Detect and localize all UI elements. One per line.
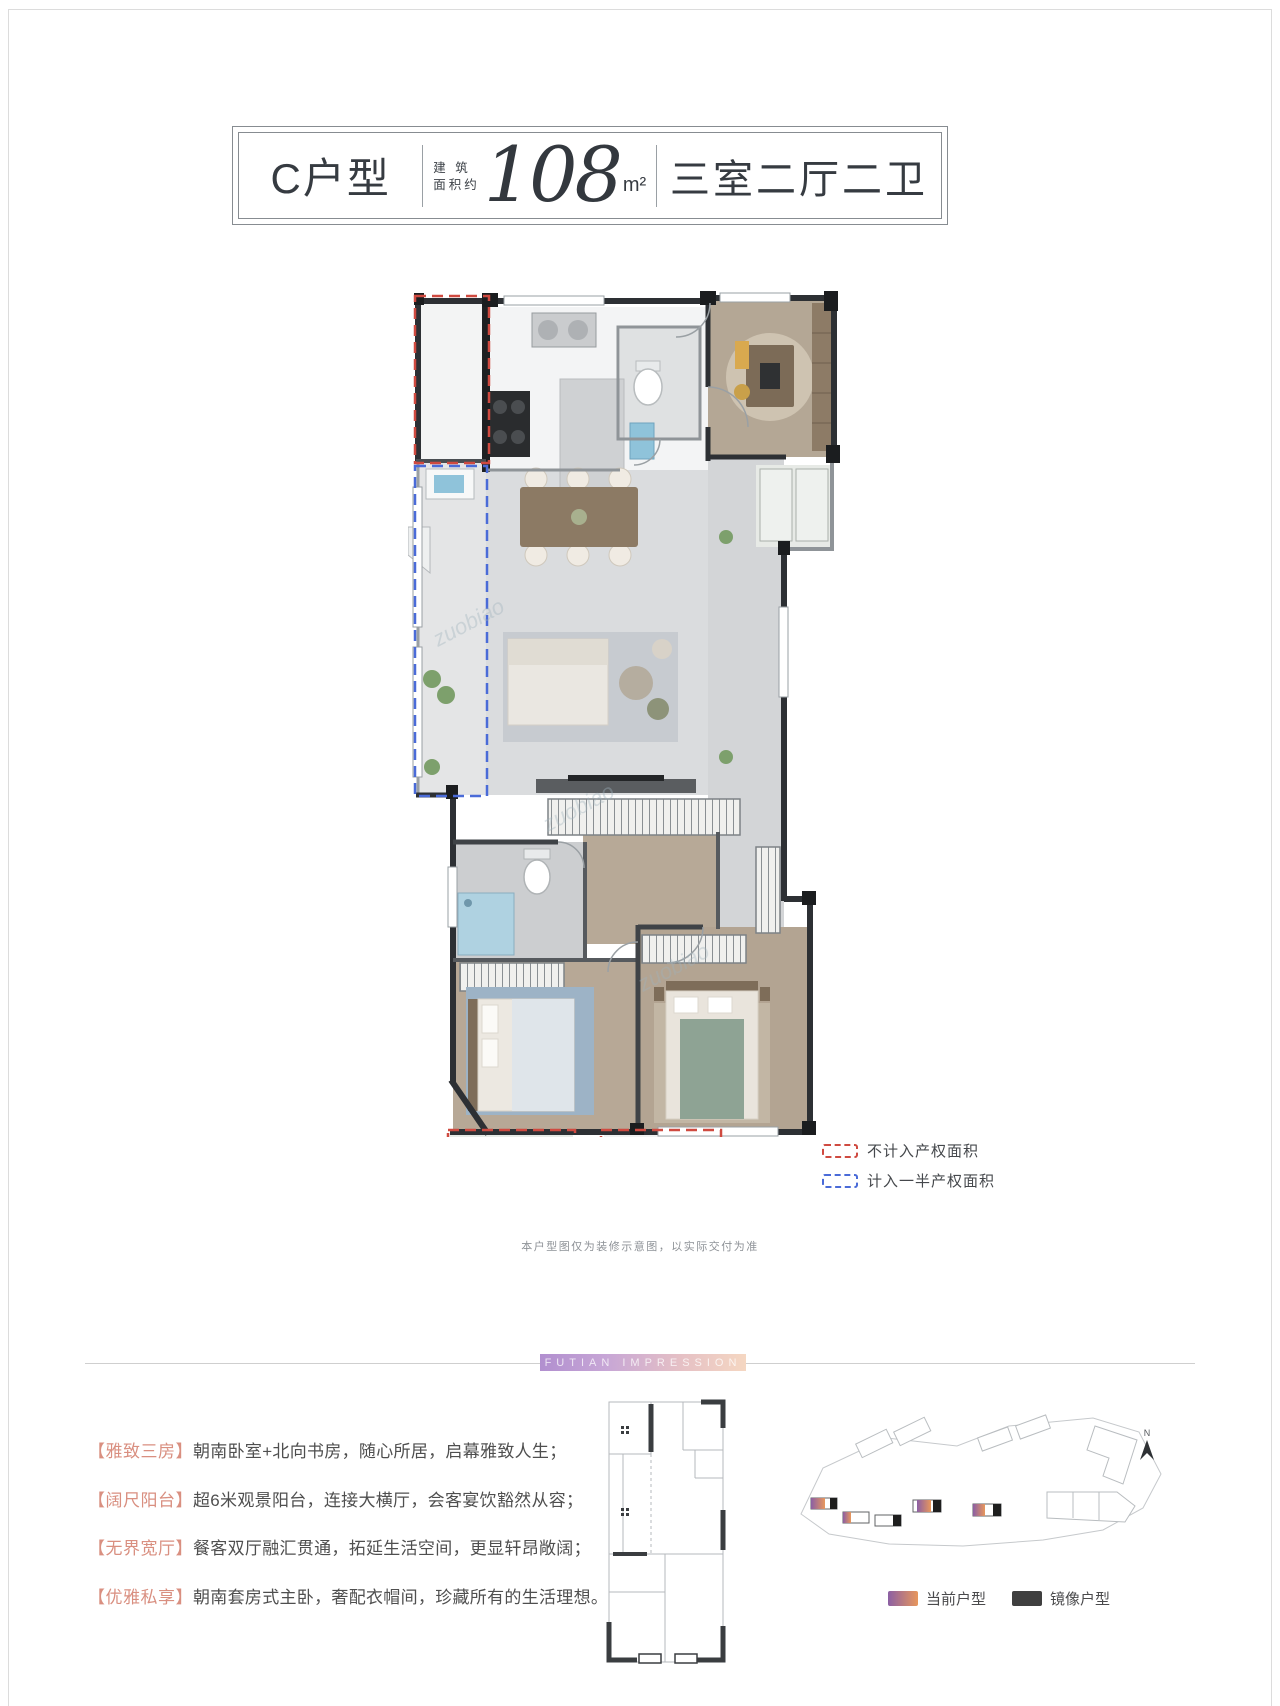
- blue-dashed-swatch: [822, 1174, 858, 1188]
- schematic-floorplan-thumbnail: [575, 1392, 735, 1672]
- feature-item: 【优雅私享】朝南套房式主卧，奢配衣帽间，珍藏所有的生活理想。: [88, 1589, 508, 1608]
- plan-legend: 不计入产权面积 计入一半产权面积: [822, 1140, 995, 1191]
- legend-current-unit: 当前户型: [888, 1588, 986, 1609]
- current-unit-swatch: [888, 1591, 918, 1606]
- area-group: 建 筑 面积约 108 m²: [423, 144, 656, 206]
- mirror-unit-swatch: [1012, 1591, 1042, 1606]
- legend-row-red: 不计入产权面积: [822, 1140, 995, 1161]
- header-inner-box: C户型 建 筑 面积约 108 m² 三室二厅二卫: [238, 132, 942, 219]
- area-prefix: 建 筑 面积约: [433, 160, 480, 195]
- blue-legend-label: 计入一半产权面积: [867, 1170, 995, 1191]
- area-prefix-line2: 面积约: [433, 177, 480, 195]
- feature-item: 【雅致三房】朝南卧室+北向书房，随心所居，启幕雅致人生；: [88, 1443, 508, 1462]
- feature-tag: 【阔尺阳台】: [88, 1491, 193, 1510]
- feature-desc: 朝南套房式主卧，奢配衣帽间，珍藏所有的生活理想。: [193, 1588, 608, 1607]
- unit-type-label: C户型: [239, 145, 422, 206]
- legend-row-blue: 计入一半产权面积: [822, 1170, 995, 1191]
- area-unit: m²: [623, 174, 646, 197]
- feature-tag: 【无界宽厅】: [88, 1539, 193, 1558]
- feature-tag: 【优雅私享】: [88, 1588, 193, 1607]
- siteplan-legend: 当前户型 镜像户型: [888, 1588, 1110, 1609]
- svg-text:N: N: [1144, 1428, 1151, 1438]
- feature-item: 【阔尺阳台】超6米观景阳台，连接大横厅，会客宴饮豁然从容；: [88, 1492, 508, 1511]
- area-value: 108: [484, 144, 620, 206]
- feature-desc: 超6米观景阳台，连接大横厅，会客宴饮豁然从容；: [193, 1491, 583, 1510]
- mirror-unit-label: 镜像户型: [1050, 1588, 1110, 1609]
- feature-desc: 朝南卧室+北向书房，随心所居，启幕雅致人生；: [193, 1442, 567, 1461]
- header-box: C户型 建 筑 面积约 108 m² 三室二厅二卫: [232, 126, 948, 225]
- disclaimer-text: 本户型图仅为装修示意图，以实际交付为准: [400, 1238, 880, 1254]
- legend-mirror-unit: 镜像户型: [1012, 1588, 1110, 1609]
- feature-item: 【无界宽厅】餐客双厅融汇贯通，拓延生活空间，更显轩昂敞阔；: [88, 1540, 508, 1559]
- project-banner: FUTIAN IMPRESSION: [540, 1354, 746, 1371]
- floorplan-rendering: zuobiao zuobiao zuobiao: [408, 287, 848, 1137]
- project-banner-title: FUTIAN IMPRESSION: [545, 1357, 742, 1369]
- feature-desc: 餐客双厅融汇贯通，拓延生活空间，更显轩昂敞阔；: [193, 1539, 591, 1558]
- floorplan-poster-page: C户型 建 筑 面积约 108 m² 三室二厅二卫: [0, 0, 1280, 1706]
- current-unit-label: 当前户型: [926, 1588, 986, 1609]
- red-legend-label: 不计入产权面积: [867, 1140, 979, 1161]
- north-arrow-icon: N: [1140, 1428, 1154, 1460]
- unit-markers: [811, 1498, 1001, 1526]
- red-dashed-swatch: [822, 1144, 858, 1158]
- room-layout-label: 三室二厅二卫: [657, 147, 941, 205]
- area-prefix-line1: 建 筑: [433, 160, 480, 178]
- siteplan-map: N: [795, 1412, 1175, 1584]
- feature-tag: 【雅致三房】: [88, 1442, 193, 1461]
- feature-list: 【雅致三房】朝南卧室+北向书房，随心所居，启幕雅致人生； 【阔尺阳台】超6米观景…: [88, 1443, 508, 1638]
